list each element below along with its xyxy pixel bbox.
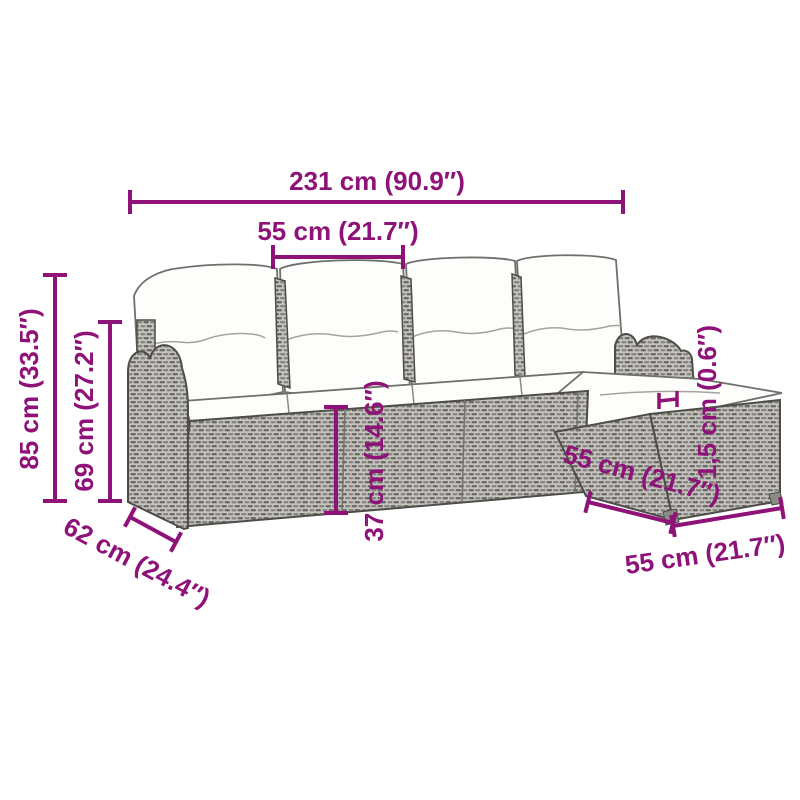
- dim-label-seat-height: 37 cm (14.6″): [361, 380, 387, 541]
- dim-label-seat-width: 55 cm (21.7″): [257, 218, 418, 244]
- dim-label-total-height: 85 cm (33.5″): [16, 308, 42, 469]
- dim-label-backrest-height: 69 cm (27.2″): [71, 330, 97, 491]
- dimension-diagram: 231 cm (90.9″) 55 cm (21.7″) 85 cm (33.5…: [0, 0, 800, 800]
- dim-label-overall-width: 231 cm (90.9″): [289, 168, 465, 194]
- left-armrest: [128, 345, 188, 529]
- dim-total-height-line: [43, 275, 67, 501]
- sofa-illustration: [0, 0, 800, 800]
- dim-label-cushion-thickness: 1,5 cm (0.6″): [694, 325, 720, 479]
- dim-backrest-height-line: [98, 322, 122, 501]
